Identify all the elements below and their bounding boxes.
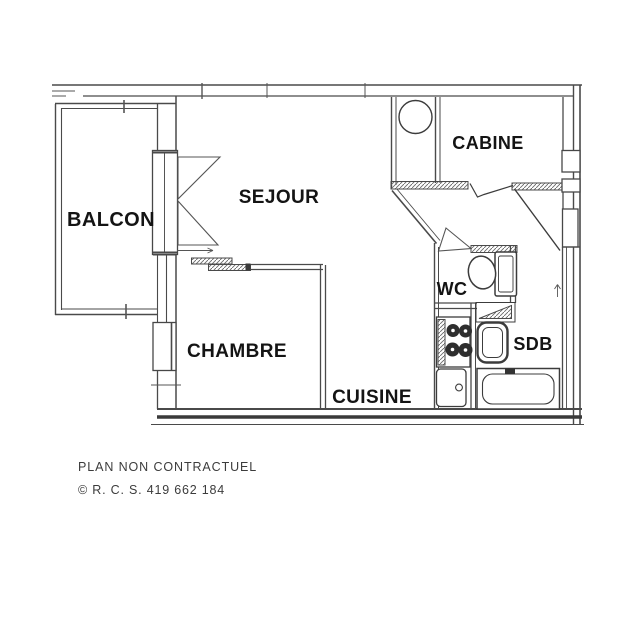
- floor-plan: BALCON SEJOUR CABINE CHAMBRE WC SDB CUIS…: [0, 0, 640, 640]
- washbasin: [478, 323, 508, 363]
- chambre-window: [153, 255, 176, 371]
- cooktop: [437, 317, 473, 367]
- cabine-door-leaf: [470, 184, 513, 198]
- interior-walls: [248, 97, 580, 409]
- room-label-sdb: SDB: [513, 334, 552, 354]
- vent-arrow-icon: [555, 285, 561, 298]
- entrance-door-swing: [515, 189, 561, 251]
- kitchen-sink: [437, 369, 467, 407]
- toilet: [465, 252, 516, 296]
- room-label-wc: WC: [437, 279, 468, 299]
- bathtub: [477, 369, 560, 410]
- shelf-triangle: [476, 303, 515, 323]
- room-label-cuisine: CUISINE: [332, 387, 412, 408]
- water-heater-closet: [392, 97, 441, 189]
- room-label-sejour: SEJOUR: [239, 187, 320, 208]
- balcony-door: [153, 151, 178, 255]
- balcony-french-door: [178, 157, 220, 245]
- room-label-balcon: BALCON: [67, 209, 155, 231]
- east-window: [562, 151, 580, 173]
- sliding-door: [177, 248, 251, 271]
- water-heater: [399, 101, 432, 134]
- floor-plan-page: BALCON SEJOUR CABINE CHAMBRE WC SDB CUIS…: [0, 0, 640, 640]
- disclaimer-text: PLAN NON CONTRACTUEL: [78, 460, 257, 474]
- registration-text: © R. C. S. 419 662 184: [78, 483, 225, 497]
- room-label-cabine: CABINE: [452, 133, 523, 153]
- entrance-door-frame: [563, 209, 579, 247]
- room-label-chambre: CHAMBRE: [187, 341, 287, 362]
- wc-door-swing: [439, 228, 472, 251]
